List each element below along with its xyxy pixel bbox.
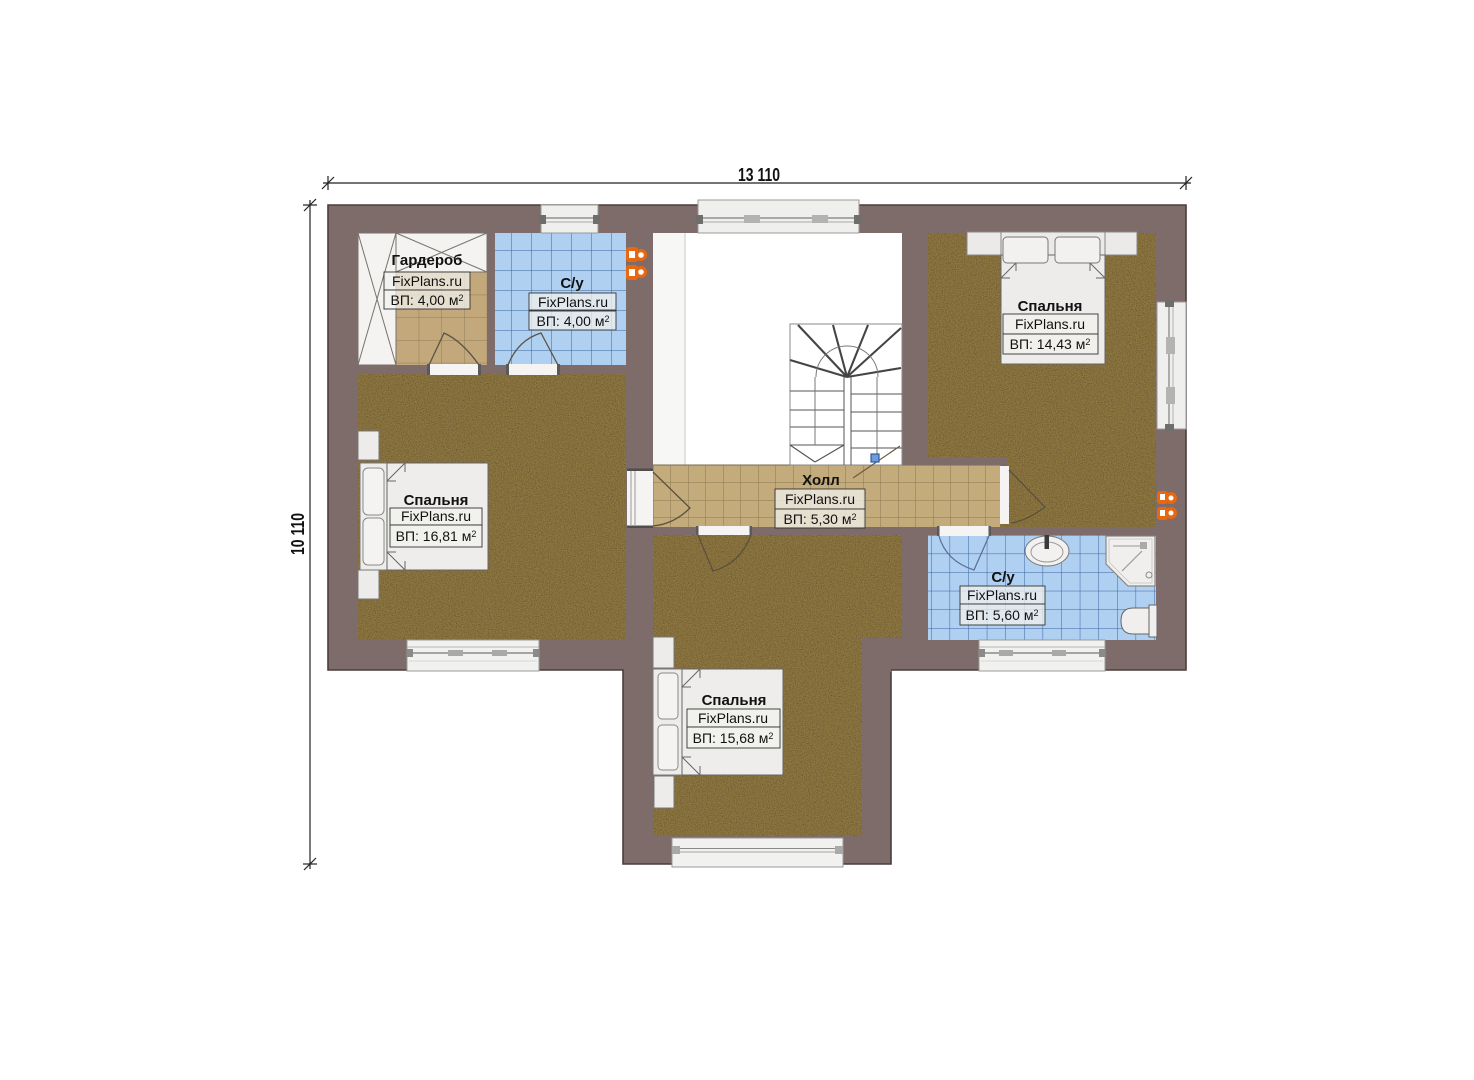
svg-text:ВП: 4,00 м2: ВП: 4,00 м2 xyxy=(391,292,464,308)
svg-text:FixPlans.ru: FixPlans.ru xyxy=(967,587,1037,603)
svg-text:С/у: С/у xyxy=(560,275,584,292)
svg-text:ВП: 4,00 м2: ВП: 4,00 м2 xyxy=(537,313,610,329)
svg-text:13 110: 13 110 xyxy=(738,165,780,185)
svg-text:Спальня: Спальня xyxy=(404,492,469,509)
svg-text:Спальня: Спальня xyxy=(702,692,767,709)
svg-text:FixPlans.ru: FixPlans.ru xyxy=(1015,316,1085,332)
svg-text:FixPlans.ru: FixPlans.ru xyxy=(785,491,855,507)
svg-text:FixPlans.ru: FixPlans.ru xyxy=(698,710,768,726)
svg-text:С/у: С/у xyxy=(991,569,1015,586)
svg-text:FixPlans.ru: FixPlans.ru xyxy=(538,294,608,310)
svg-text:ВП: 14,43 м2: ВП: 14,43 м2 xyxy=(1010,336,1091,352)
svg-text:ВП: 16,81 м2: ВП: 16,81 м2 xyxy=(396,528,477,544)
svg-text:ВП: 5,30 м2: ВП: 5,30 м2 xyxy=(784,511,857,527)
svg-text:FixPlans.ru: FixPlans.ru xyxy=(401,508,471,524)
svg-text:FixPlans.ru: FixPlans.ru xyxy=(392,273,462,289)
svg-text:10 110: 10 110 xyxy=(288,513,308,555)
svg-text:Холл: Холл xyxy=(802,472,840,489)
svg-text:Гардероб: Гардероб xyxy=(392,252,463,269)
svg-text:ВП: 15,68 м2: ВП: 15,68 м2 xyxy=(693,730,774,746)
svg-text:ВП: 5,60 м2: ВП: 5,60 м2 xyxy=(966,607,1039,623)
svg-text:Спальня: Спальня xyxy=(1018,298,1083,315)
